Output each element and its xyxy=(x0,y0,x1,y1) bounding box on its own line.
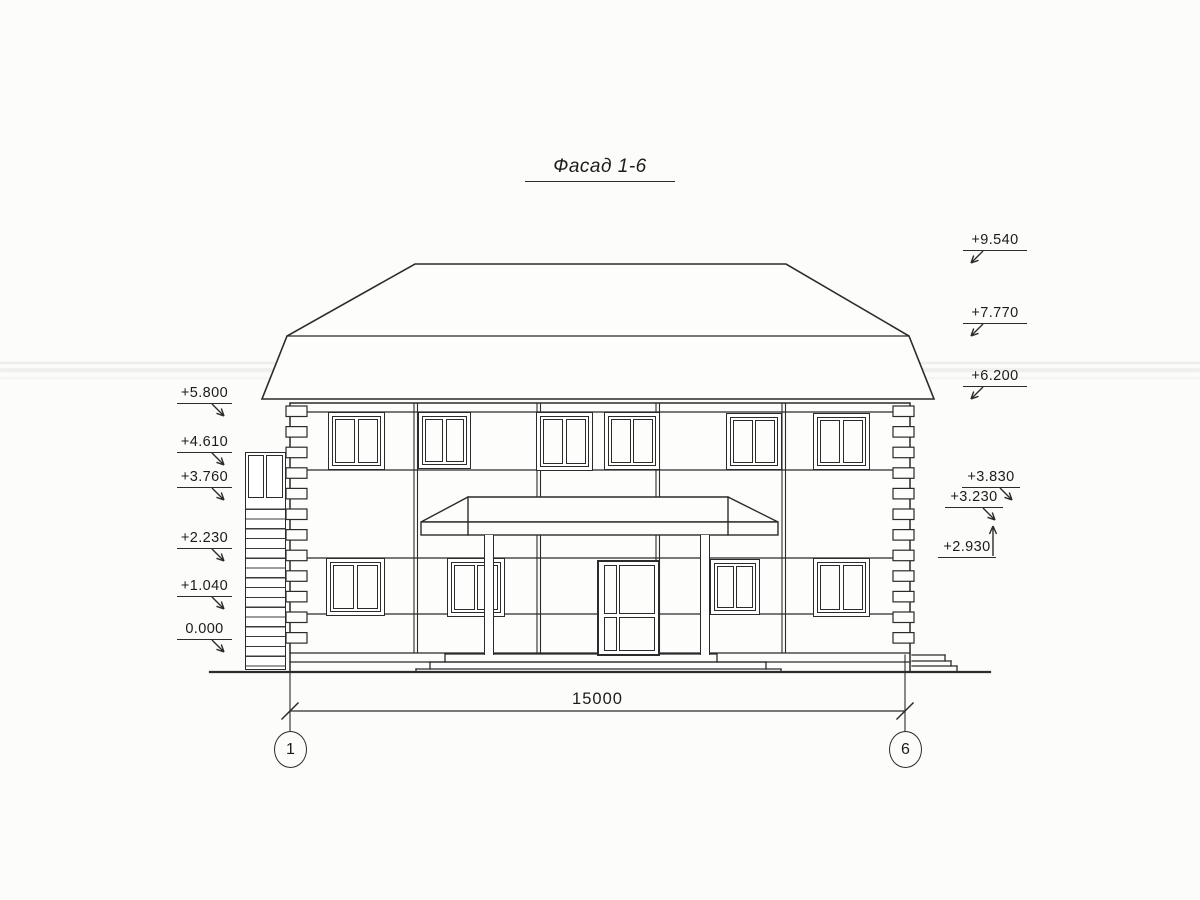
facade-drawing-sheet: Фасад 1-6 +5.800 +4.610 +3.760 +2.230 +1… xyxy=(0,0,1200,900)
vent-pane xyxy=(248,455,264,498)
elevation-mark: +1.040 xyxy=(177,578,232,597)
door-leaf xyxy=(619,565,655,651)
elevation-arrow-icon xyxy=(964,250,986,266)
elevation-mark: +9.540 xyxy=(963,232,1027,251)
entrance-canopy xyxy=(400,490,800,540)
window xyxy=(813,413,870,470)
roof-outline xyxy=(262,264,934,399)
window xyxy=(710,559,760,615)
dimension-value: 15000 xyxy=(520,690,675,709)
window xyxy=(326,558,385,616)
elevation-arrow-icon xyxy=(964,323,986,339)
door-sidelight xyxy=(604,565,617,651)
elevation-mark: +5.800 xyxy=(177,385,232,404)
elevation-arrow-icon xyxy=(209,452,231,468)
elevation-arrow-icon xyxy=(209,548,231,564)
elevation-arrow-icon xyxy=(209,487,231,503)
elevation-arrow-up-icon xyxy=(986,523,1000,557)
elevation-arrow-icon xyxy=(209,403,231,419)
elevation-arrow-icon xyxy=(980,507,1002,523)
elevation-mark: +2.230 xyxy=(177,530,232,549)
porch-column xyxy=(700,535,710,655)
elevation-mark: +6.200 xyxy=(963,368,1027,387)
window xyxy=(328,412,385,470)
window xyxy=(604,412,660,470)
drawing-title: Фасад 1-6 xyxy=(525,156,675,182)
window xyxy=(447,558,505,617)
window xyxy=(726,413,782,470)
elevation-arrow-icon xyxy=(209,596,231,612)
chimney-louvers xyxy=(245,500,286,670)
porch-column xyxy=(484,535,494,655)
axis-marker-1: 1 xyxy=(274,731,307,768)
axis-marker-6: 6 xyxy=(889,731,922,768)
elevation-arrow-icon xyxy=(964,386,986,402)
window xyxy=(418,412,471,469)
window xyxy=(813,558,870,617)
elevation-mark: 0.000 xyxy=(177,621,232,640)
vent-pane xyxy=(266,455,283,498)
window xyxy=(536,412,593,471)
elevation-mark: +3.230 xyxy=(945,489,1003,508)
elevation-mark: +3.760 xyxy=(177,469,232,488)
elevation-mark: +3.830 xyxy=(962,469,1020,488)
elevation-mark: +4.610 xyxy=(177,434,232,453)
side-steps xyxy=(912,655,957,672)
elevation-mark: +7.770 xyxy=(963,305,1027,324)
stair-vent-window xyxy=(245,452,286,501)
elevation-arrow-icon xyxy=(209,639,231,655)
entrance-door xyxy=(597,560,660,656)
elevation-mark: +2.930 xyxy=(938,539,996,558)
